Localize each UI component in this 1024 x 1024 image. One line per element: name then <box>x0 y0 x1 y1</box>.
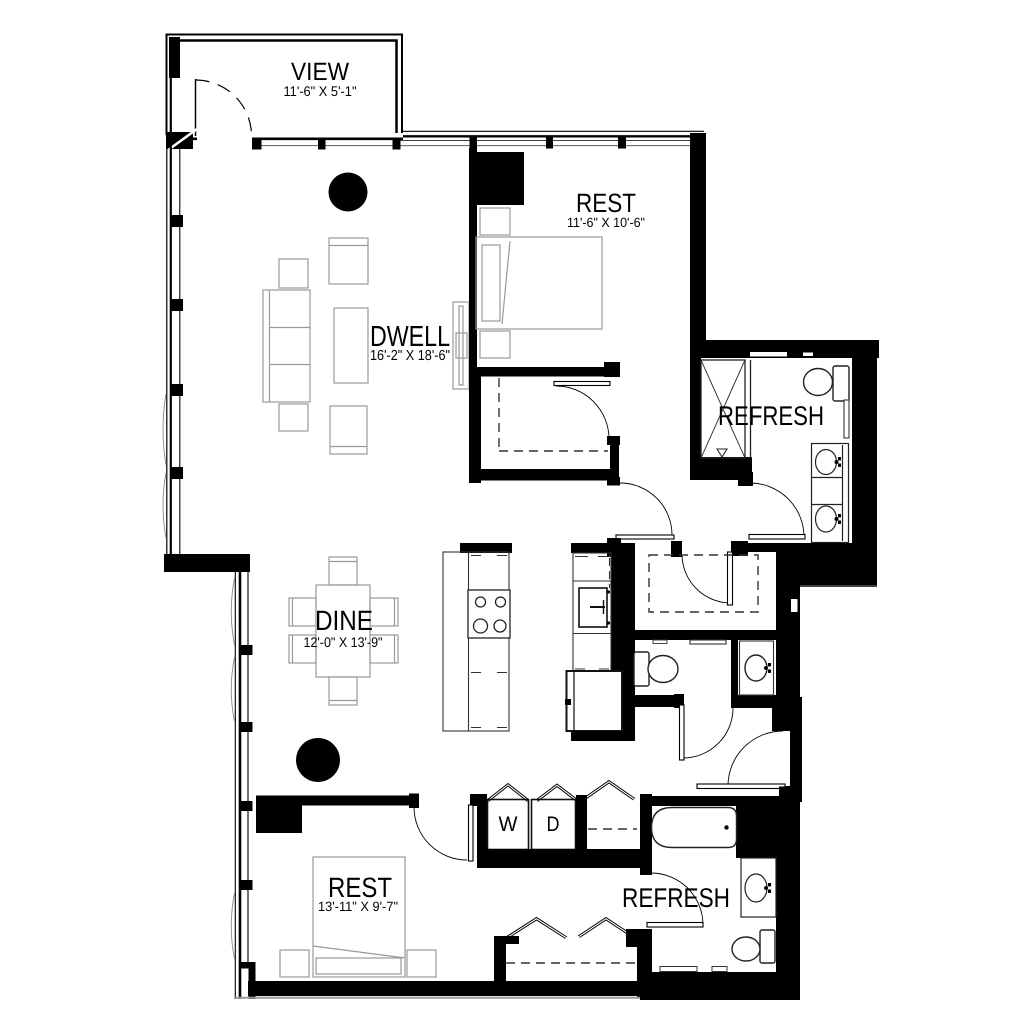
svg-text:REST: REST <box>576 188 636 218</box>
svg-text:11'-6" X 5'-1": 11'-6" X 5'-1" <box>284 83 357 99</box>
svg-text:D: D <box>547 813 560 836</box>
svg-text:REFRESH: REFRESH <box>622 883 730 913</box>
svg-text:DINE: DINE <box>315 605 373 636</box>
svg-text:11'-6" X 10'-6": 11'-6" X 10'-6" <box>567 215 645 230</box>
svg-text:12'-0" X 13'-9": 12'-0" X 13'-9" <box>304 634 383 650</box>
svg-text:VIEW: VIEW <box>291 58 349 86</box>
svg-text:REFRESH: REFRESH <box>718 401 824 431</box>
svg-text:W: W <box>499 813 518 836</box>
svg-text:13'-11" X 9'-7": 13'-11" X 9'-7" <box>318 899 398 914</box>
svg-text:16'-2" X 18'-6": 16'-2" X 18'-6" <box>370 348 450 364</box>
